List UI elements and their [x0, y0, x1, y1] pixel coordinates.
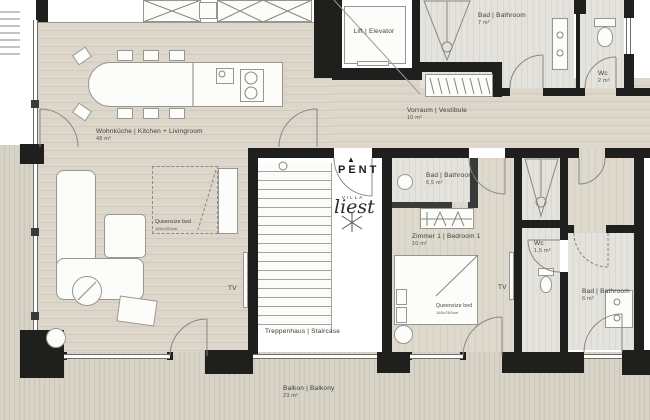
room-label-bathroom-7: Bad | Bathroom 7 m²: [478, 12, 526, 28]
kitchen-appliance: [199, 2, 217, 19]
room-name: Bad | Bathroom: [426, 172, 474, 180]
room-area: 2 m²: [598, 78, 610, 85]
wall: [250, 148, 334, 158]
window-mullion: [31, 312, 39, 320]
armchair: [104, 214, 146, 258]
closet: [143, 0, 201, 22]
room-name: Treppenhaus | Staircase: [265, 328, 340, 336]
room-label-lift: Lift | Elevator: [338, 28, 410, 36]
window: [410, 354, 463, 359]
room-label-wc-15: Wc 1,5 m²: [534, 240, 551, 256]
room-name: Lift | Elevator: [338, 28, 410, 36]
wardrobe: [218, 168, 238, 234]
tv-label: TV: [228, 285, 237, 293]
room-area: 23 m²: [283, 393, 335, 400]
tv-label: TV: [498, 284, 507, 292]
window: [64, 354, 170, 359]
wall: [560, 272, 568, 352]
wall: [634, 148, 644, 352]
wall: [497, 88, 510, 96]
room-label-kitchen: Wohnküche | Kitchen + Livingroom 48 m²: [96, 128, 203, 144]
toilet-bowl: [597, 27, 613, 47]
room-area: 10 m²: [412, 241, 481, 248]
wall: [20, 144, 44, 164]
logo-liest-script: liest: [334, 196, 372, 218]
toilet-bowl: [540, 276, 552, 293]
cooktop: [240, 69, 264, 102]
bed-annotation: Queensize bed 180x200cm: [436, 303, 472, 315]
wall: [624, 54, 634, 96]
ottoman: [116, 295, 157, 326]
room-label-balcony: Balkon | Balkony 23 m²: [283, 385, 335, 401]
wall: [372, 148, 469, 158]
bench: [396, 307, 407, 323]
room-label-vestibule: Vorraum | Vestibule 10 m²: [407, 107, 467, 123]
window-mullion: [31, 228, 39, 236]
wall: [576, 14, 580, 90]
tv-panel: [243, 252, 248, 308]
bed-size: 180x200cm: [155, 226, 191, 231]
room-label-staircase: Treppenhaus | Staircase: [265, 328, 340, 336]
pent-label: PENT: [338, 164, 379, 176]
window-mullion: [31, 100, 39, 108]
window: [626, 18, 631, 54]
chair: [143, 50, 159, 61]
wall: [382, 158, 392, 354]
wall: [574, 0, 586, 14]
bench: [396, 289, 407, 305]
toilet: [594, 18, 616, 27]
tv-panel: [509, 252, 514, 300]
floor-balcony-left: [0, 145, 33, 352]
room-name: Zimmer 1 | Bedroom 1: [412, 233, 481, 241]
floor-lamp: [46, 328, 66, 348]
chair: [117, 108, 133, 119]
chair: [169, 50, 185, 61]
chair: [117, 50, 133, 61]
room-name: Wc: [534, 240, 551, 248]
bed-annotation: Queensize bed 180x200cm: [155, 219, 191, 231]
room-label-bedroom-1: Zimmer 1 | Bedroom 1 10 m²: [412, 233, 481, 249]
toilet: [538, 268, 554, 276]
window: [33, 20, 38, 144]
room-name: Wohnküche | Kitchen + Livingroom: [96, 128, 203, 136]
wall: [502, 352, 584, 373]
bed-name: Queensize bed: [155, 219, 191, 226]
wall: [377, 352, 410, 373]
wall: [205, 350, 253, 374]
tv-text: TV: [228, 285, 237, 293]
bed-name: Queensize bed: [436, 303, 472, 310]
window: [584, 354, 622, 359]
room-label-bathroom-6: Bad | Bathroom 6 m²: [582, 288, 630, 304]
wall: [332, 68, 422, 80]
pent-up-arrow-icon: ▲: [347, 155, 355, 164]
washbasin: [397, 174, 413, 190]
window: [253, 354, 377, 359]
vanity: [552, 18, 568, 70]
wall: [412, 0, 420, 70]
room-name: Wc: [598, 70, 610, 78]
coffee-table: [72, 276, 102, 306]
wall: [560, 225, 574, 233]
room-area: 6,5 m²: [426, 180, 474, 187]
wall: [314, 0, 342, 78]
floor-shower-room: [522, 156, 560, 220]
window: [33, 164, 38, 330]
wall: [622, 350, 650, 375]
nightstand: [394, 325, 413, 344]
bedroom-wardrobe: [420, 208, 474, 229]
room-area: 7 m²: [478, 20, 526, 27]
room-label-bathroom-65: Bad | Bathroom 6,5 m²: [426, 172, 474, 188]
chair: [143, 108, 159, 119]
chair: [169, 108, 185, 119]
room-name: Balkon | Balkony: [283, 385, 335, 393]
lift-door: [357, 61, 389, 66]
tv-text: TV: [498, 284, 507, 292]
room-area: 1,5 m²: [534, 248, 551, 255]
bed-size: 180x200cm: [436, 310, 472, 315]
room-name: Bad | Bathroom: [582, 288, 630, 296]
room-area: 48 m²: [96, 136, 203, 143]
floor-hall-right: [568, 148, 634, 233]
wall: [624, 0, 634, 18]
wall: [36, 0, 48, 22]
kitchen-sink: [216, 68, 234, 84]
wall: [420, 62, 500, 72]
room-name: Bad | Bathroom: [478, 12, 526, 20]
coat-wardrobe: [425, 74, 493, 97]
room-area: 10 m²: [407, 115, 467, 122]
wall: [248, 148, 258, 354]
stair-treads: [258, 163, 332, 332]
room-label-wc-2: Wc 2 m²: [598, 70, 610, 86]
closet: [217, 0, 312, 22]
floor-plan: Wohnküche | Kitchen + Livingroom 48 m² L…: [0, 0, 650, 420]
room-area: 6 m²: [582, 296, 630, 303]
sofa: [56, 170, 96, 270]
room-name: Vorraum | Vestibule: [407, 107, 467, 115]
wall: [514, 148, 522, 354]
